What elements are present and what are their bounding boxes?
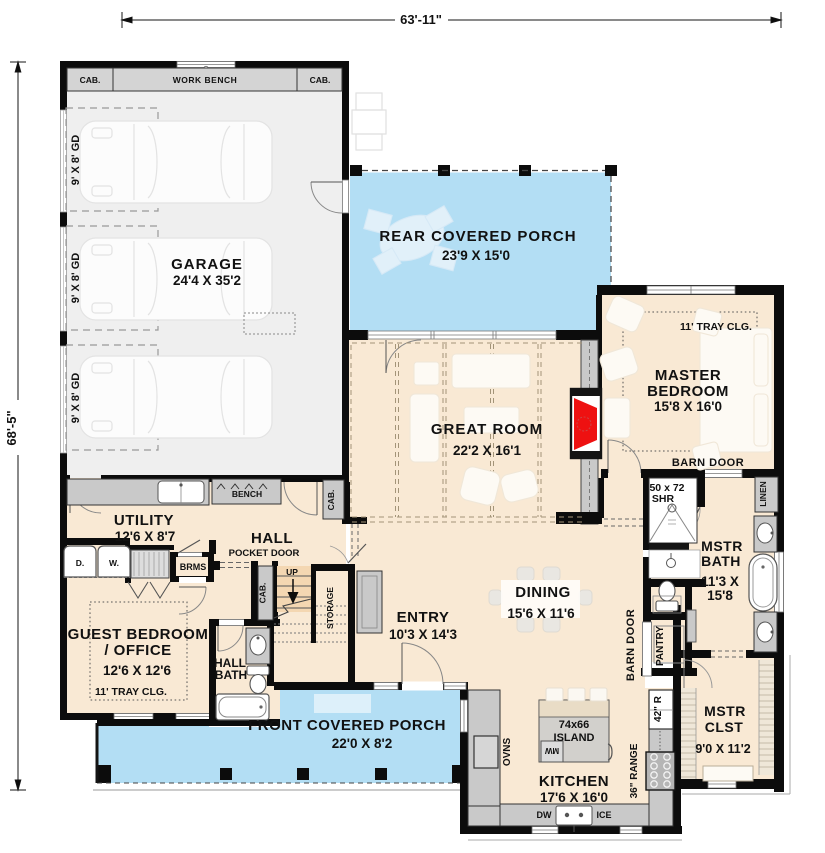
- svg-text:BEDROOM: BEDROOM: [647, 383, 729, 400]
- svg-text:CAB.: CAB.: [310, 75, 331, 85]
- svg-text:36" RANGE: 36" RANGE: [629, 743, 640, 798]
- svg-text:FRONT COVERED PORCH: FRONT COVERED PORCH: [248, 717, 446, 734]
- svg-text:BARN DOOR: BARN DOOR: [672, 457, 744, 469]
- svg-text:11' TRAY CLG.: 11' TRAY CLG.: [680, 321, 752, 333]
- svg-text:15'6 X 11'6: 15'6 X 11'6: [507, 606, 575, 621]
- svg-text:D.: D.: [76, 558, 85, 568]
- svg-text:GUEST BEDROOM: GUEST BEDROOM: [68, 626, 209, 643]
- svg-text:9' X 8' GD: 9' X 8' GD: [70, 135, 82, 186]
- svg-text:11' TRAY CLG.: 11' TRAY CLG.: [95, 686, 167, 698]
- svg-text:W.: W.: [109, 558, 119, 568]
- svg-text:HALL: HALL: [251, 530, 293, 547]
- svg-text:22'0 X 8'2: 22'0 X 8'2: [332, 736, 392, 751]
- svg-text:CAB.: CAB.: [80, 75, 101, 85]
- svg-text:SHR: SHR: [652, 493, 675, 505]
- svg-text:MSTR: MSTR: [701, 538, 743, 554]
- svg-text:STORAGE: STORAGE: [325, 587, 335, 629]
- svg-text:KITCHEN: KITCHEN: [539, 773, 609, 790]
- svg-text:REAR COVERED PORCH: REAR COVERED PORCH: [379, 228, 576, 245]
- svg-text:CAB.: CAB.: [258, 583, 268, 604]
- svg-text:9' X 8' GD: 9' X 8' GD: [70, 253, 82, 304]
- svg-text:OVNS: OVNS: [502, 738, 513, 767]
- svg-text:12'6 X 8'7: 12'6 X 8'7: [115, 529, 175, 544]
- svg-text:9' X 8' GD: 9' X 8' GD: [70, 373, 82, 424]
- svg-text:23'9 X 15'0: 23'9 X 15'0: [442, 248, 510, 263]
- svg-text:17'6 X 16'0: 17'6 X 16'0: [540, 790, 608, 805]
- svg-text:15'8: 15'8: [707, 588, 733, 603]
- svg-text:UTILITY: UTILITY: [114, 512, 174, 529]
- svg-text:UP: UP: [286, 567, 298, 577]
- svg-text:PANTRY: PANTRY: [655, 626, 666, 666]
- svg-text:ICE: ICE: [596, 810, 611, 820]
- svg-text:DW: DW: [537, 810, 552, 820]
- svg-text:10'3 X 14'3: 10'3 X 14'3: [389, 627, 457, 642]
- svg-text:9'0 X 11'2: 9'0 X 11'2: [695, 742, 750, 756]
- svg-text:63'-11": 63'-11": [400, 12, 442, 27]
- svg-text:15'8 X 16'0: 15'8 X 16'0: [654, 399, 722, 414]
- svg-text:BATH: BATH: [215, 668, 247, 682]
- svg-text:GREAT ROOM: GREAT ROOM: [431, 421, 543, 438]
- svg-text:MSTR: MSTR: [704, 703, 746, 719]
- svg-text:BATH: BATH: [701, 553, 741, 569]
- svg-text:GARAGE: GARAGE: [171, 256, 243, 273]
- svg-text:42" R: 42" R: [653, 695, 664, 722]
- svg-text:22'2 X 16'1: 22'2 X 16'1: [453, 443, 521, 458]
- svg-text:12'6 X 12'6: 12'6 X 12'6: [103, 663, 171, 678]
- svg-text:24'4 X 35'2: 24'4 X 35'2: [173, 273, 241, 288]
- svg-text:LINEN: LINEN: [758, 481, 768, 507]
- svg-text:WORK BENCH: WORK BENCH: [173, 75, 238, 85]
- svg-text:ISLAND: ISLAND: [554, 732, 595, 744]
- svg-text:11'3 X: 11'3 X: [701, 574, 739, 589]
- svg-text:/ OFFICE: / OFFICE: [104, 642, 171, 659]
- svg-text:BENCH: BENCH: [232, 489, 262, 499]
- svg-text:CAB.: CAB.: [326, 490, 336, 511]
- svg-text:ENTRY: ENTRY: [397, 609, 450, 626]
- svg-text:DINING: DINING: [515, 584, 571, 601]
- svg-text:BRMS: BRMS: [180, 562, 207, 572]
- svg-text:POCKET DOOR: POCKET DOOR: [229, 548, 300, 559]
- svg-text:CLST: CLST: [705, 719, 744, 735]
- svg-text:MASTER: MASTER: [655, 367, 721, 384]
- svg-text:BARN DOOR: BARN DOOR: [625, 609, 637, 681]
- svg-text:74x66: 74x66: [559, 719, 590, 731]
- svg-text:68'-5": 68'-5": [4, 410, 19, 445]
- svg-text:MW: MW: [544, 746, 559, 755]
